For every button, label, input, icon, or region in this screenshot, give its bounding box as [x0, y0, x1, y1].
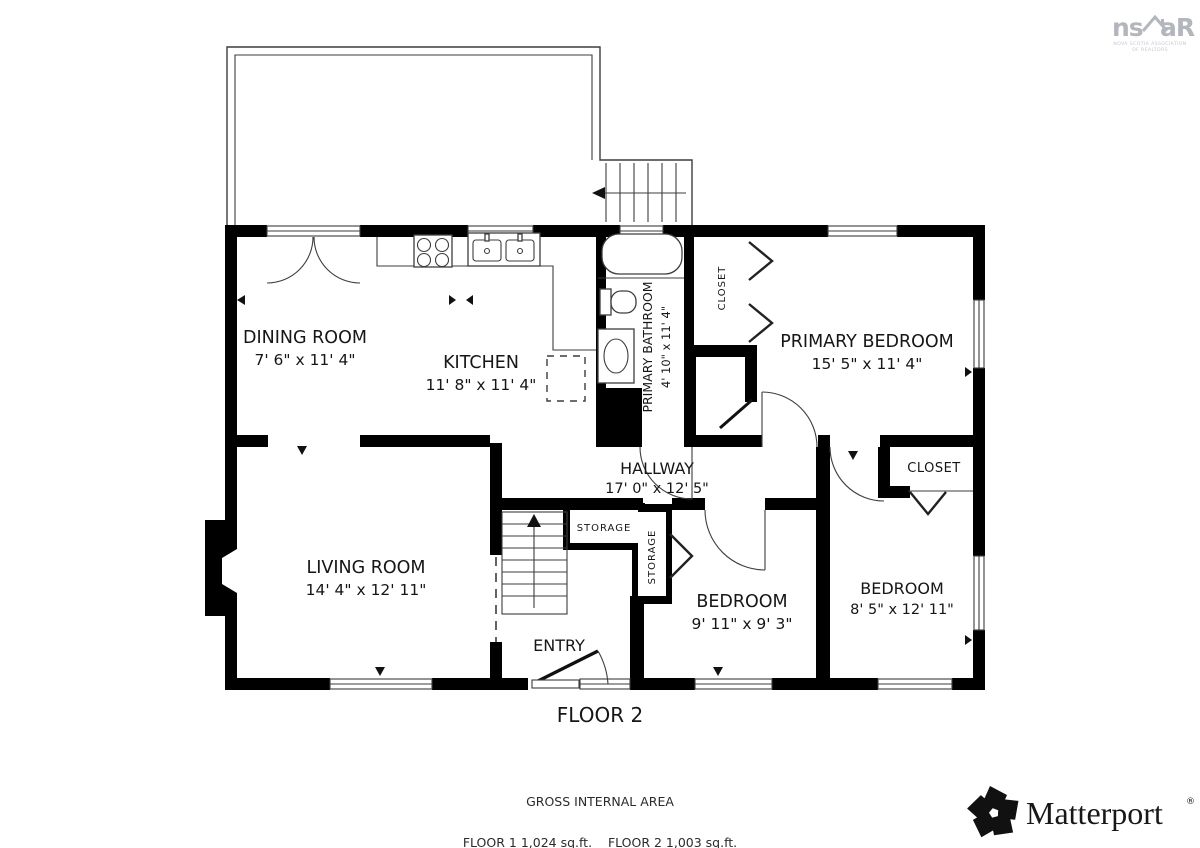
- bathtub-icon: [602, 234, 682, 274]
- double-sink-icon: [468, 233, 540, 266]
- primary-bathroom-label: PRIMARY BATHROOM: [640, 281, 655, 412]
- primary-bedroom-dims: 15' 5" x 11' 4": [812, 355, 923, 373]
- matterport-pinwheel-icon: [965, 786, 1024, 842]
- primary-bedroom-side-window: [974, 300, 984, 368]
- bedroom2-side-window: [974, 556, 984, 630]
- dining-room-dims: 7' 6" x 11' 4": [255, 351, 356, 369]
- exterior-stairs-icon: [592, 163, 686, 222]
- kitchen-dims: 11' 8" x 11' 4": [426, 376, 537, 394]
- utility-nook-door-icon: [720, 400, 752, 428]
- interior-stairs-icon: [496, 512, 567, 642]
- patio-door-threshold: [267, 226, 360, 236]
- storage-hall-label: STORAGE: [577, 523, 632, 534]
- floor-plan-drawing: DINING ROOM 7' 6" x 11' 4" KITCHEN 11' 8…: [0, 0, 1200, 848]
- patio-french-doors-icon: [267, 237, 360, 283]
- nsar-logo: ns aR NOVA SCOTIA ASSOCIATION OF REALTOR…: [1102, 6, 1198, 56]
- walls: [205, 225, 985, 690]
- kitchen-label: KITCHEN: [443, 353, 519, 373]
- floor-title: FLOOR 2: [557, 703, 643, 727]
- dining-room-label: DINING ROOM: [243, 328, 367, 348]
- matterport-registered-mark: ®: [1186, 797, 1195, 807]
- entry-sidelite-window: [580, 679, 630, 689]
- bedroom2-label: BEDROOM: [860, 579, 944, 598]
- living-room-window: [330, 679, 432, 689]
- bedroom1-door-icon: [705, 510, 765, 570]
- floor-plan-page: DINING ROOM 7' 6" x 11' 4" KITCHEN 11' 8…: [0, 0, 1200, 848]
- matterport-logo: Matterport ®: [964, 782, 1196, 844]
- living-room-dims: 14' 4" x 12' 11": [306, 581, 427, 599]
- nsar-logo-ar: aR: [1160, 13, 1195, 42]
- bedroom2-door-icon: [830, 447, 884, 501]
- bedroom1-dims: 9' 11" x 9' 3": [692, 615, 793, 633]
- bedroom2-window: [878, 679, 952, 689]
- storage-bedroom1-label: STORAGE: [647, 530, 658, 585]
- hallway-dims: 17' 0" x 12' 5": [605, 481, 709, 497]
- toilet-icon: [600, 289, 636, 315]
- vanity-sink-icon: [598, 329, 634, 383]
- primary-bedroom-door-icon: [762, 392, 817, 447]
- matterport-wordmark: Matterport: [1026, 795, 1163, 831]
- nsar-subtitle-2: OF REALTORS: [1132, 47, 1168, 53]
- entry-label: ENTRY: [533, 636, 585, 655]
- hallway-label: HALLWAY: [620, 459, 694, 478]
- closet-bifold-doors-icon: [670, 242, 946, 578]
- primary-bathroom-dims: 4' 10" x 11' 4": [659, 306, 673, 388]
- nsar-logo-ns: ns: [1112, 13, 1143, 42]
- primary-bedroom-window: [828, 226, 897, 236]
- nsar-subtitle-1: NOVA SCOTIA ASSOCIATION: [1113, 41, 1186, 47]
- dishwasher-dashed-icon: [547, 356, 585, 401]
- primary-closet-label: CLOSET: [717, 266, 728, 311]
- bedroom1-label: BEDROOM: [696, 592, 787, 612]
- bedroom2-dims: 8' 5" x 12' 11": [850, 602, 954, 618]
- stove-icon: [414, 235, 452, 267]
- living-room-label: LIVING ROOM: [306, 558, 425, 578]
- bedroom1-window: [695, 679, 772, 689]
- closet-bedroom2-label: CLOSET: [907, 461, 961, 476]
- terrace-outline: [227, 47, 692, 225]
- primary-bedroom-label: PRIMARY BEDROOM: [780, 332, 954, 352]
